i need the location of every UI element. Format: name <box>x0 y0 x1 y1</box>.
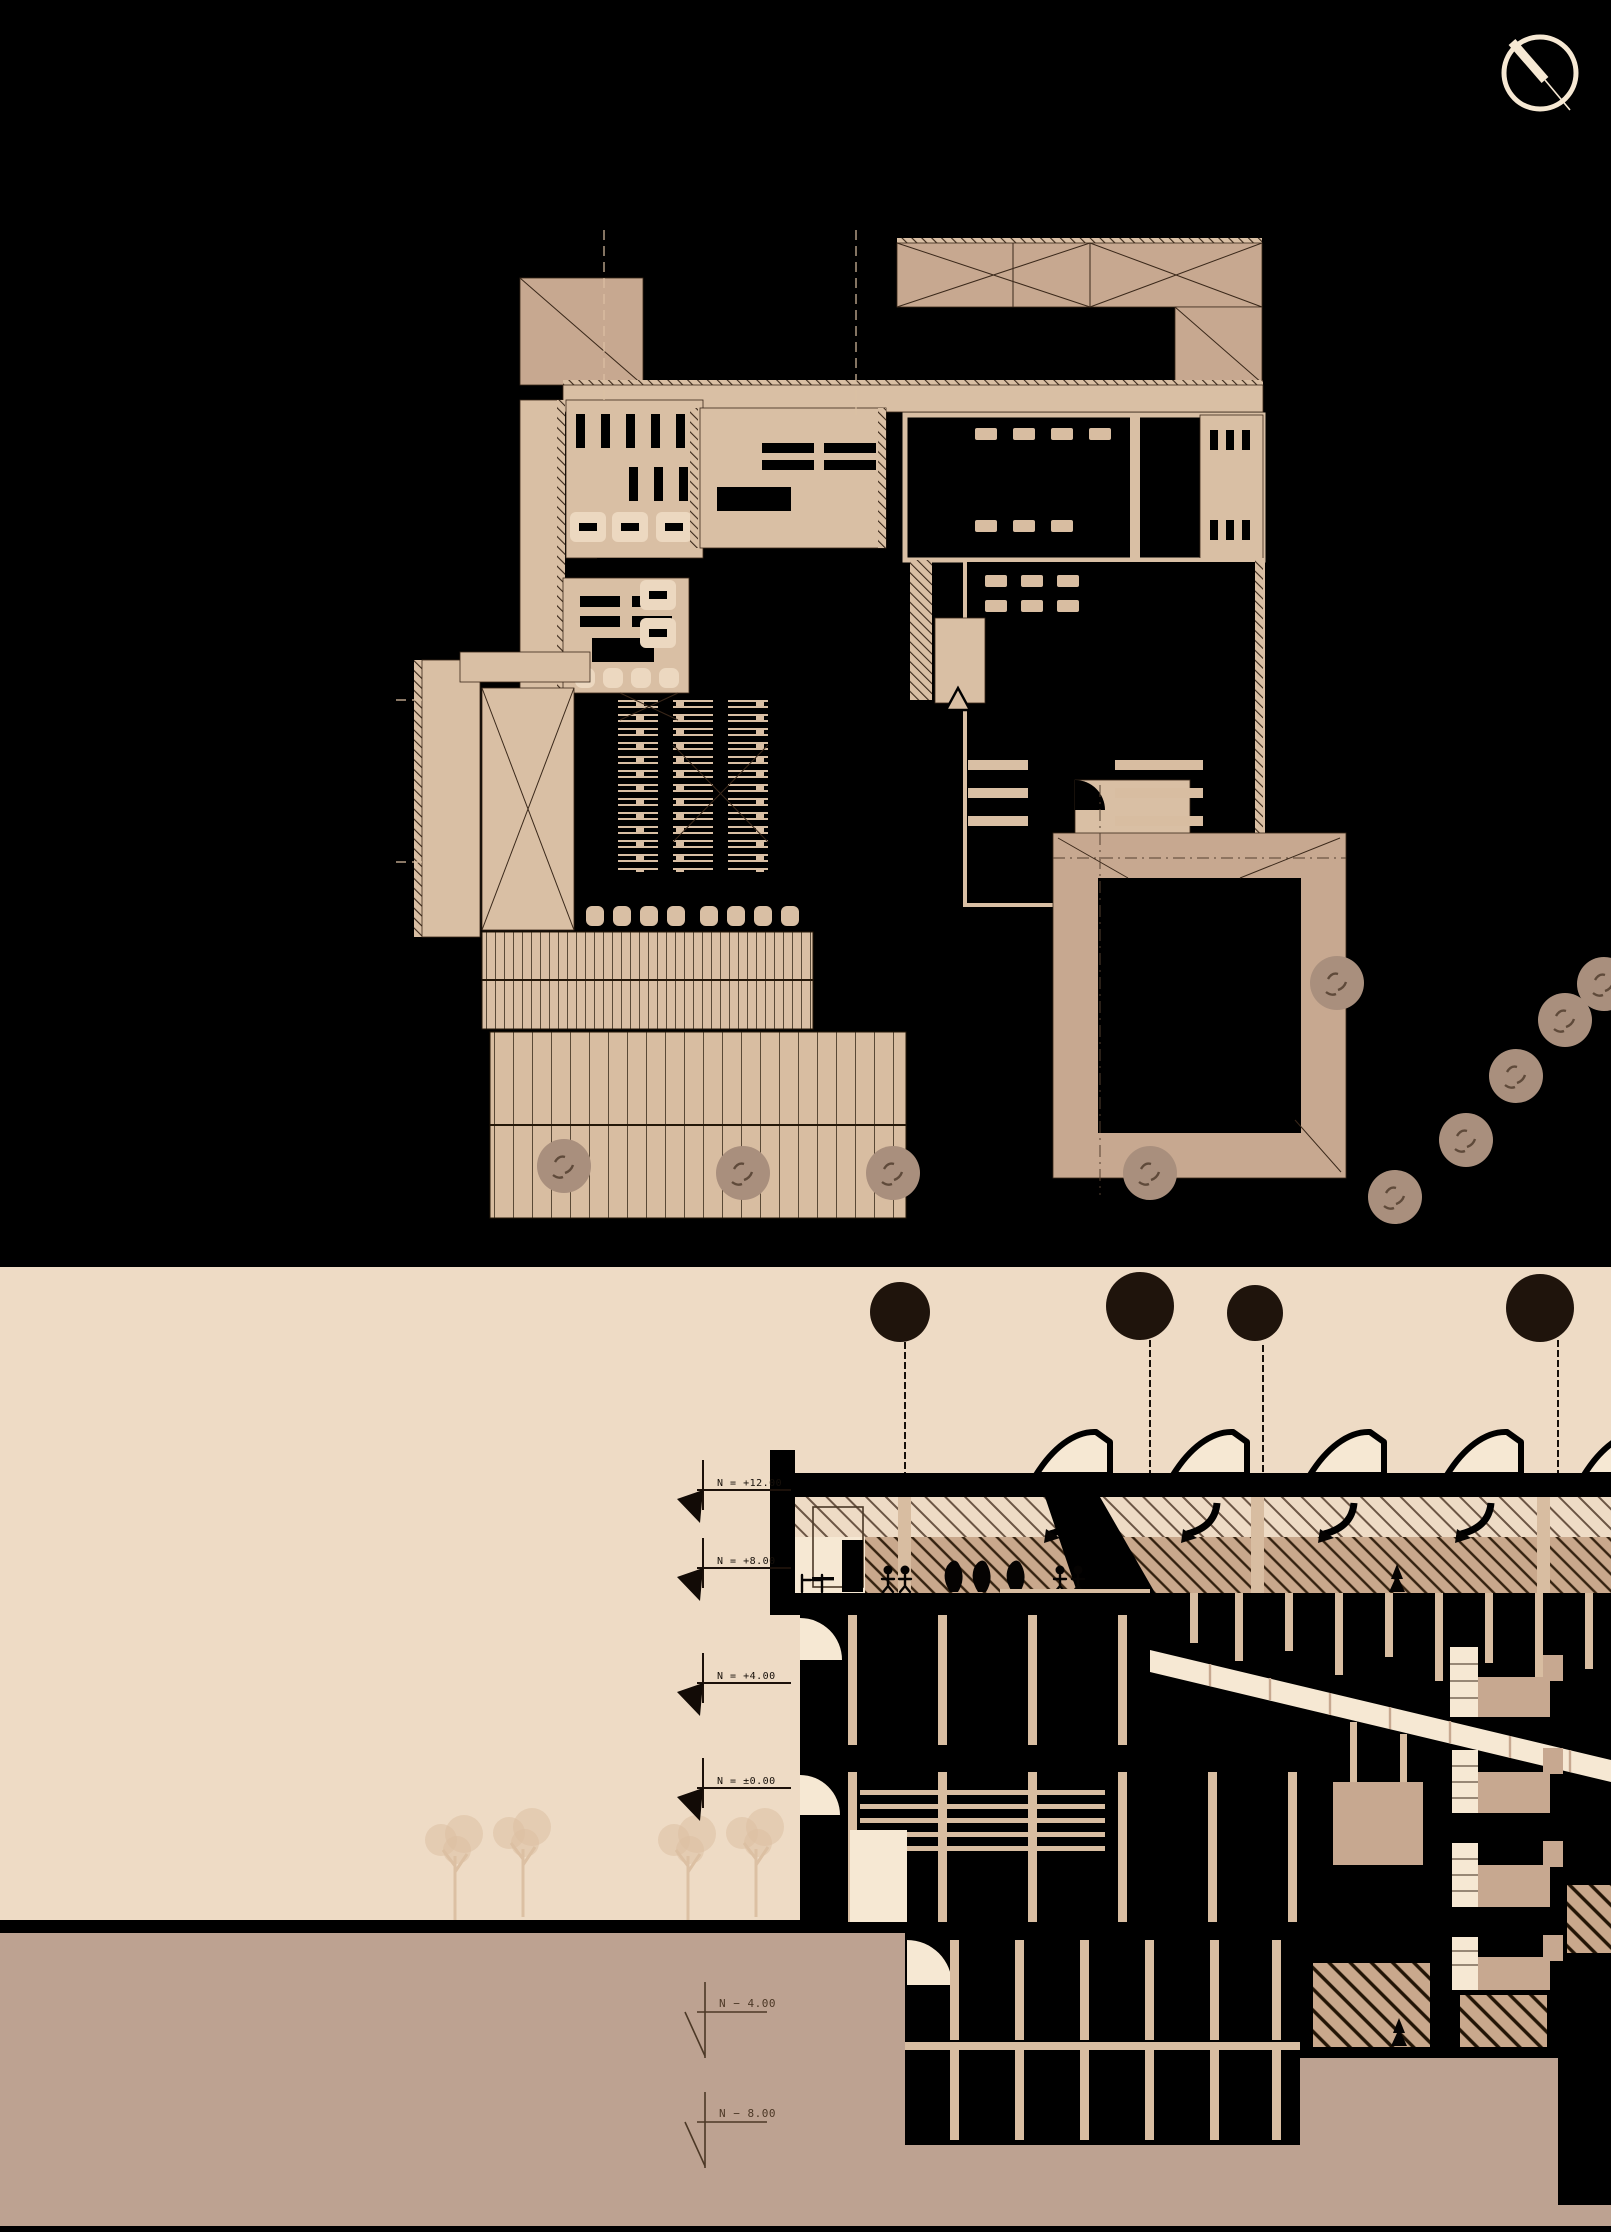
tree-icon <box>1310 956 1364 1010</box>
table <box>612 512 648 542</box>
floor-plan <box>396 230 1611 1224</box>
sheet-bottom-strip <box>0 2226 1611 2232</box>
plan-roof-left-wedge <box>520 278 643 385</box>
bookcase <box>842 1540 863 1592</box>
elevation-label: N − 4.00 <box>719 1997 776 2010</box>
north-arrow-icon <box>1504 37 1576 110</box>
drawing-sheet: N = +12.00 N = +8.00 N = +4.00 N = ±0.00… <box>0 0 1611 2232</box>
tree-icon <box>1123 1146 1177 1200</box>
table-rows <box>618 700 658 872</box>
elevation-label: N = ±0.00 <box>717 1776 776 1787</box>
table-rows <box>673 700 713 872</box>
tree-icon <box>1106 1272 1174 1340</box>
elevation-label: N = +8.00 <box>717 1556 776 1567</box>
plan-left-wing <box>520 400 703 693</box>
tree-icon <box>1506 1274 1574 1342</box>
chair <box>659 668 679 688</box>
pier <box>1333 1782 1423 1865</box>
section-left-wall <box>770 1450 795 1615</box>
tree-icon <box>1489 1049 1543 1103</box>
hall-west-wall <box>422 660 480 937</box>
chair <box>603 668 623 688</box>
tree-icon <box>1227 1285 1283 1341</box>
table <box>570 512 606 542</box>
tree-icon <box>870 1282 930 1342</box>
tree-icon <box>537 1139 591 1193</box>
plan-roof-top-bar <box>897 238 1262 383</box>
chair <box>631 668 651 688</box>
architectural-drawing: N = +12.00 N = +8.00 N = +4.00 N = ±0.00… <box>0 0 1611 2232</box>
elevation-label: N − 8.00 <box>719 2107 776 2120</box>
tree-icon <box>866 1146 920 1200</box>
doorway <box>850 1830 907 1922</box>
building-section: N = +12.00 N = +8.00 N = +4.00 N = ±0.00… <box>0 1267 1611 2232</box>
table <box>656 512 692 542</box>
table-rows <box>728 700 768 872</box>
plan-courtyard <box>1053 785 1346 1195</box>
floor-slab <box>770 1593 1155 1615</box>
table <box>640 580 676 610</box>
elevation-label: N = +12.00 <box>717 1478 782 1489</box>
elevation-label: N = +4.00 <box>717 1671 776 1682</box>
table <box>640 618 676 648</box>
tree-icon <box>716 1146 770 1200</box>
tree-icon <box>1368 1170 1422 1224</box>
tree-icon <box>1439 1113 1493 1167</box>
plan-great-hall <box>414 560 985 937</box>
